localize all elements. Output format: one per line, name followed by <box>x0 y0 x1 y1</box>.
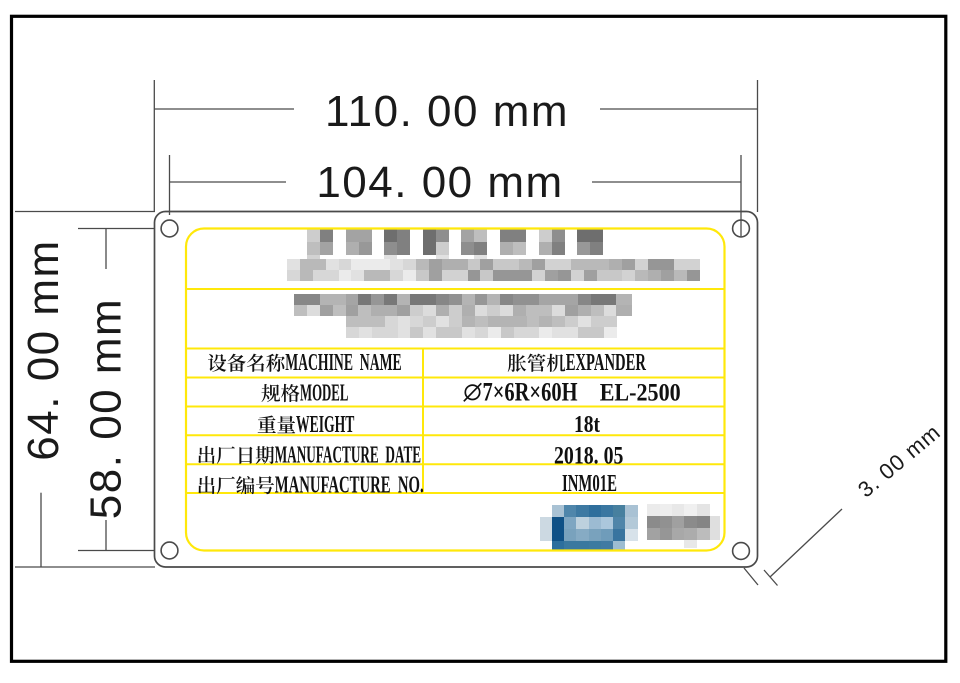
svg-text:MODEL: MODEL <box>300 380 348 406</box>
svg-text:MACHINE NAME: MACHINE NAME <box>285 350 402 376</box>
svg-text:18t: 18t <box>574 412 600 438</box>
svg-text:EXPANDER: EXPANDER <box>566 350 647 376</box>
svg-text:MANUFACTURE NO.: MANUFACTURE NO. <box>275 473 424 499</box>
svg-text:104. 00 mm: 104. 00 mm <box>316 158 563 207</box>
svg-text:58. 00 mm: 58. 00 mm <box>82 298 131 519</box>
svg-text:MANUFACTURE DATE: MANUFACTURE DATE <box>275 442 421 468</box>
svg-text:EL-2500: EL-2500 <box>600 380 681 407</box>
svg-text:64. 00 mm: 64. 00 mm <box>19 239 68 460</box>
svg-text:WEIGHT: WEIGHT <box>296 412 354 438</box>
svg-text:7×6R×60H: 7×6R×60H <box>483 378 578 407</box>
svg-text:110. 00 mm: 110. 00 mm <box>325 87 569 136</box>
svg-text:INM01E: INM01E <box>562 471 617 497</box>
svg-text:2018. 05: 2018. 05 <box>554 442 623 469</box>
